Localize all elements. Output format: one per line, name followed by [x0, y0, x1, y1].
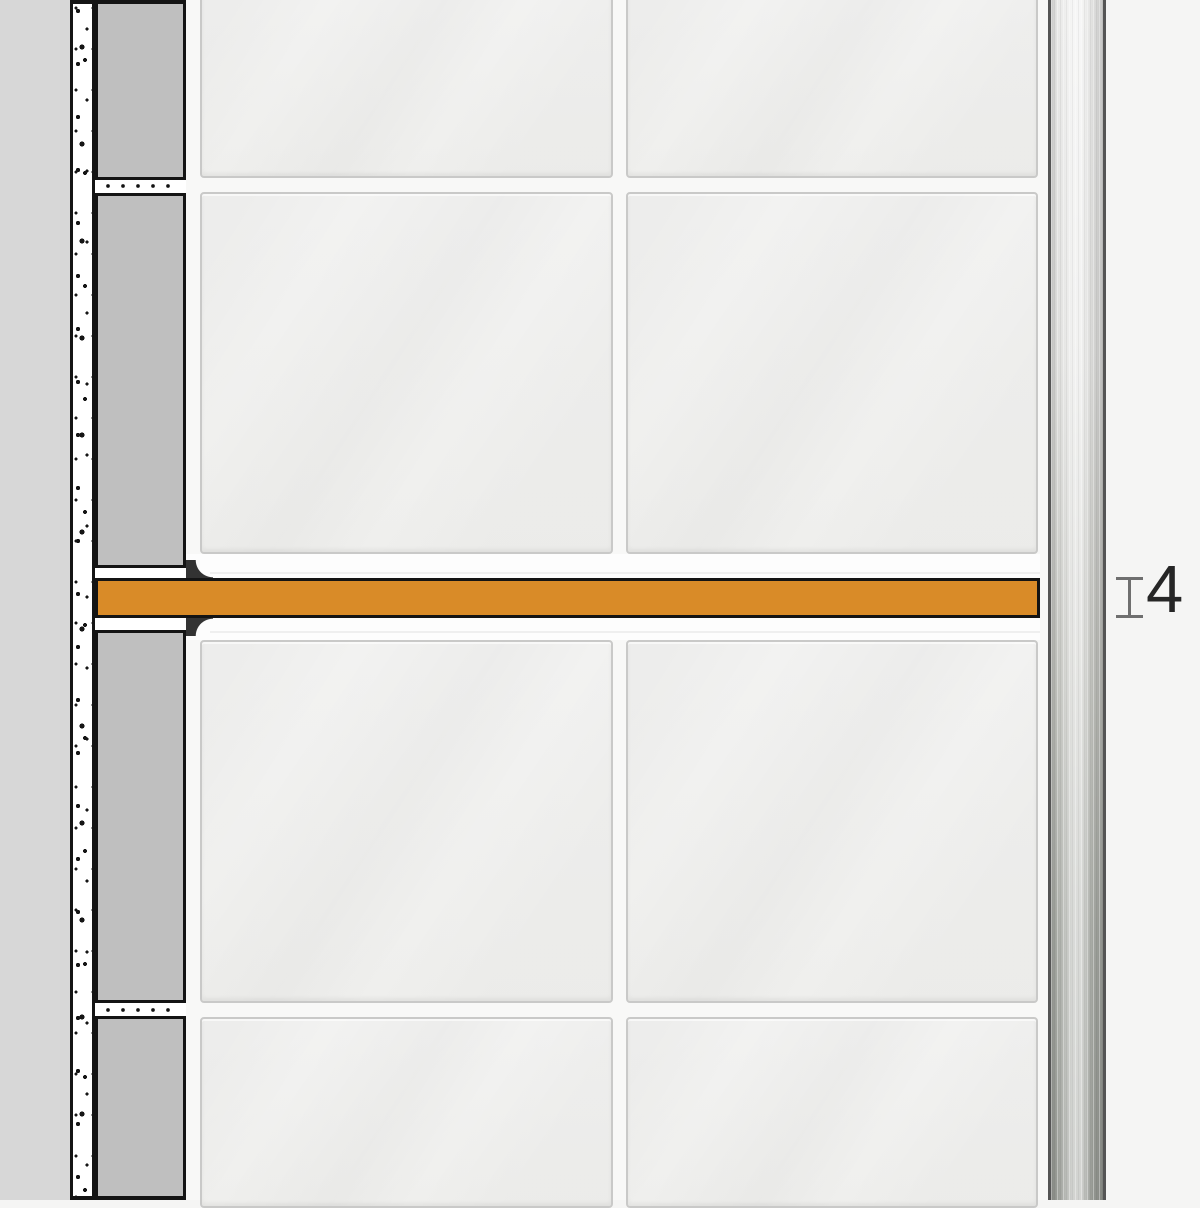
tile-shelf-cross-section-diagram: 4: [0, 0, 1200, 1200]
joint-mortar-specks: [101, 1006, 173, 1014]
mortar-bed: [70, 0, 95, 1200]
wall-tile-block: [95, 1016, 186, 1200]
tile: [626, 192, 1038, 554]
column-top-edge: [70, 0, 186, 4]
wall-substrate: [0, 0, 70, 1200]
edge-profile-metal-strip: [1048, 0, 1106, 1200]
tile: [200, 640, 613, 1003]
wall-tile-block: [95, 193, 186, 568]
wall-tile-block: [95, 630, 186, 1003]
wall-tile-block: [95, 0, 186, 180]
tile: [626, 640, 1038, 1003]
joint-mortar-specks: [101, 182, 173, 190]
tile: [200, 0, 613, 178]
shelf-profile-bar: [95, 578, 1040, 618]
shelf-edge-shadow-line: [210, 572, 1040, 574]
joint-fillet-lower: [186, 618, 213, 636]
joint-fillet-upper: [186, 560, 213, 578]
thickness-gauge-icon: [1116, 577, 1143, 618]
shelf-edge-shadow-line: [210, 631, 1040, 633]
tile: [626, 1017, 1038, 1208]
column-bottom-edge: [70, 1196, 186, 1200]
tile: [200, 192, 613, 554]
tile: [626, 0, 1038, 178]
thickness-dimension-value: 4: [1146, 556, 1183, 623]
tile: [200, 1017, 613, 1208]
